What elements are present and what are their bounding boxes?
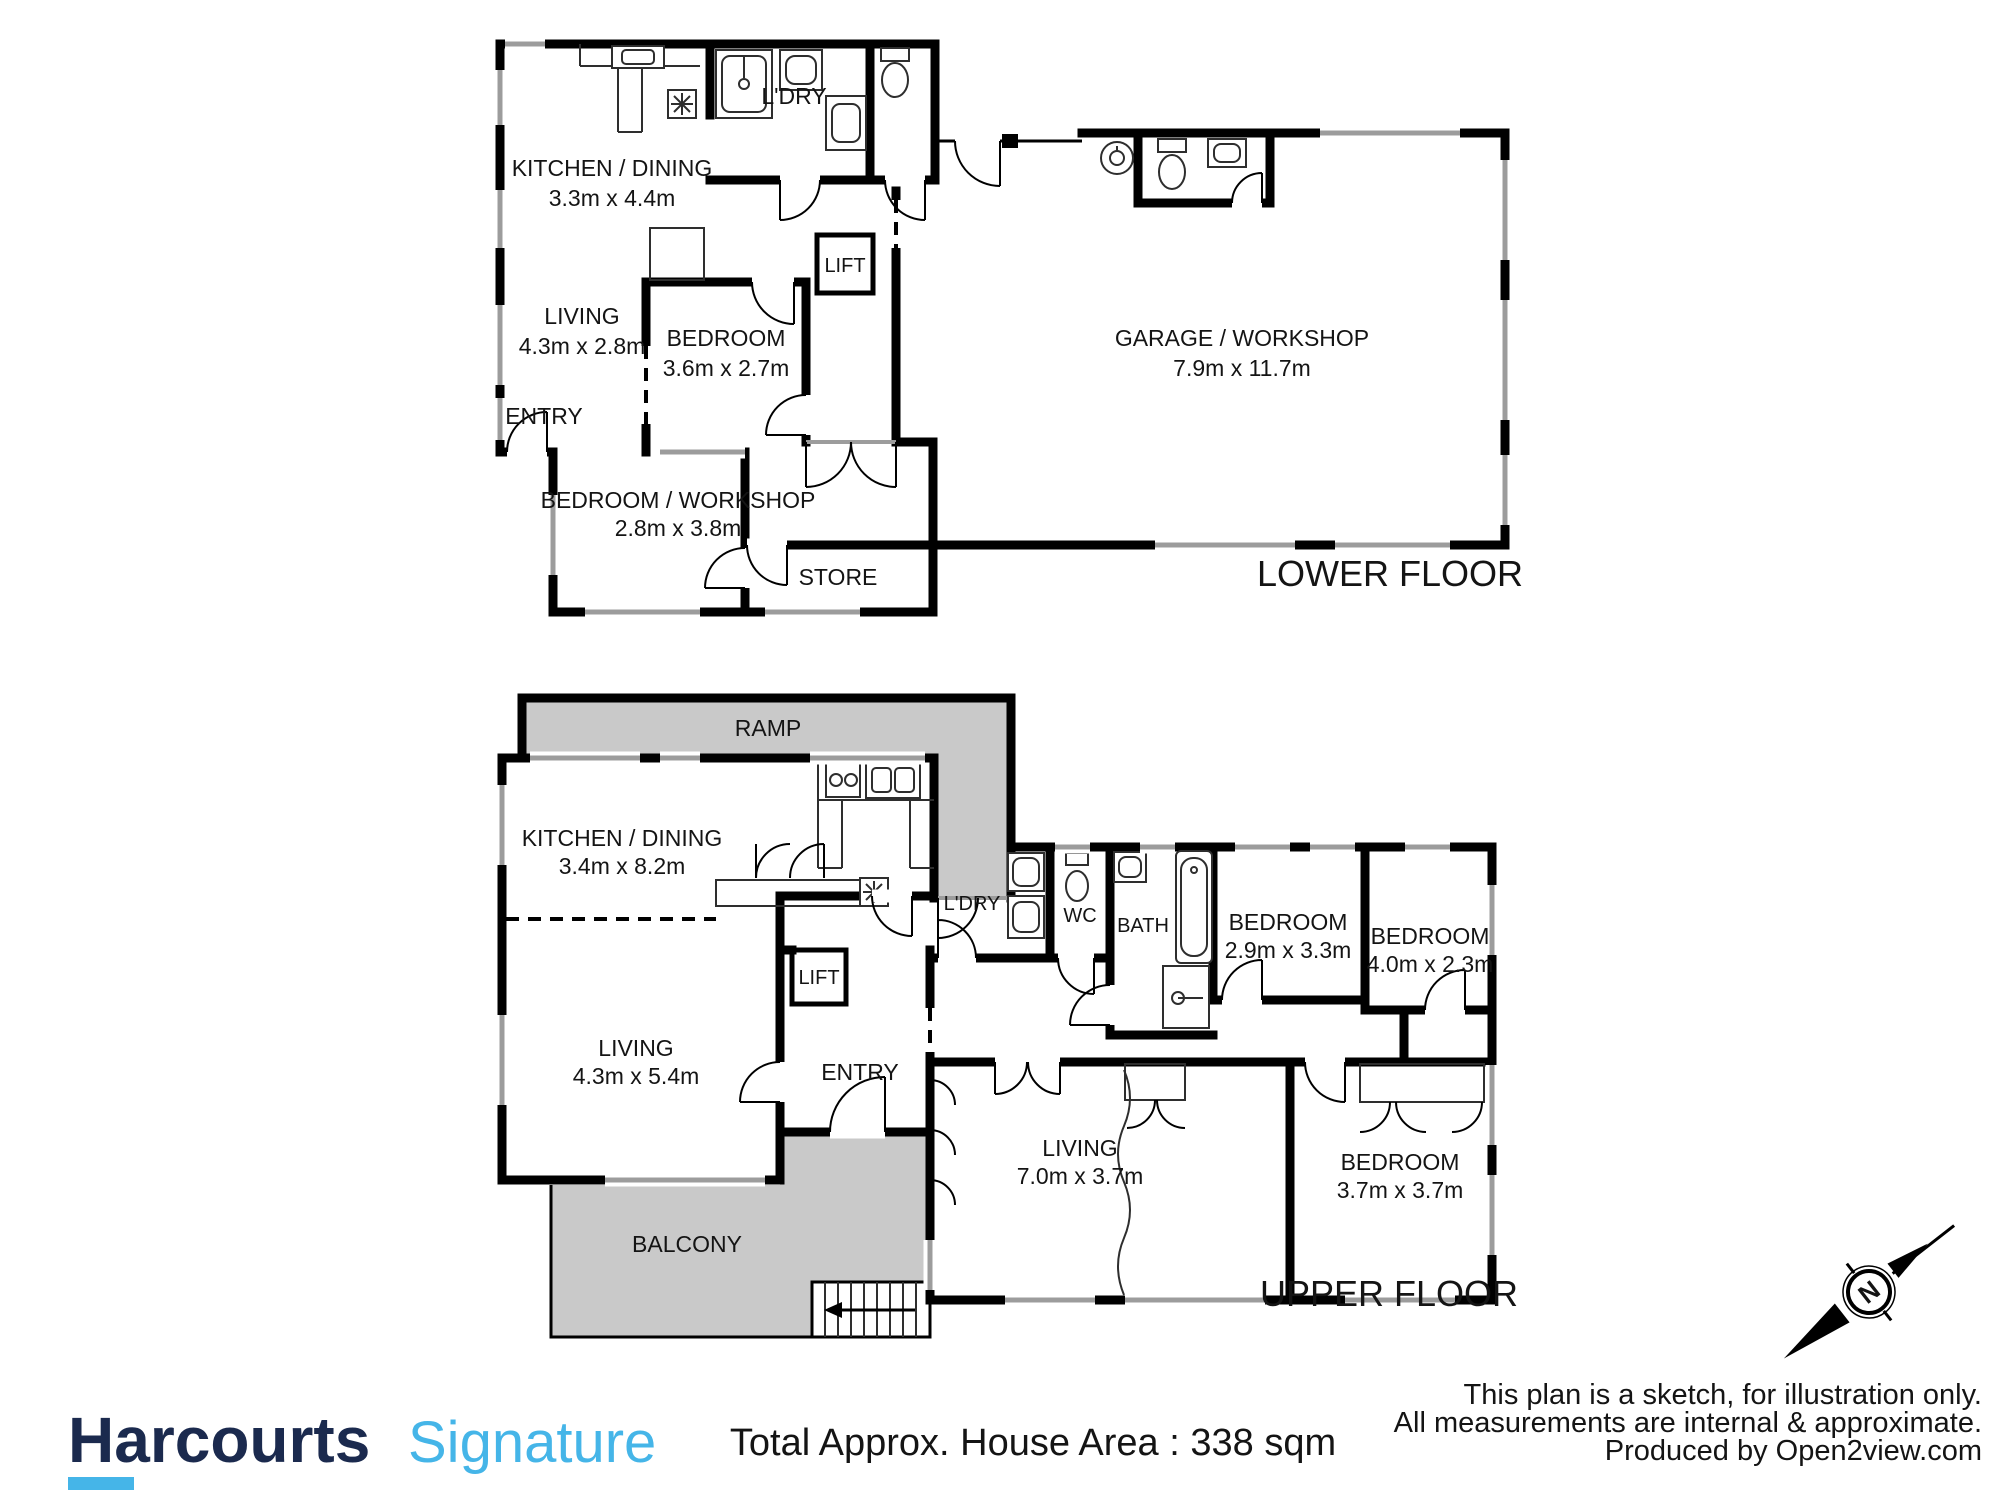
washing-machine-icon-lower bbox=[826, 96, 866, 150]
room-label-balcony: BALCONY bbox=[632, 1231, 742, 1257]
gate-post bbox=[1002, 134, 1018, 148]
room-label-kitchen-dining-upper: KITCHEN / DINING bbox=[522, 825, 723, 851]
room-dims-kitchen-dining-upper: 3.4m x 8.2m bbox=[559, 853, 686, 879]
hot-water-cylinder-icon bbox=[1101, 142, 1133, 174]
kitchen-sink-icon-upper bbox=[866, 762, 920, 798]
floor-plan: KITCHEN / DINING 3.3m x 4.4m L'DRY LIVIN… bbox=[0, 0, 2000, 1500]
washing-machine-icon-upper bbox=[1008, 896, 1044, 938]
room-label-ramp: RAMP bbox=[735, 715, 801, 741]
room-label-laundry-lower: L'DRY bbox=[761, 83, 826, 109]
room-label-living2-upper: LIVING bbox=[1042, 1135, 1117, 1161]
toilet-icon-upper bbox=[1066, 853, 1088, 901]
room-label-lift-lower: LIFT bbox=[824, 255, 865, 277]
room-label-bedroom-workshop: BEDROOM / WORKSHOP bbox=[541, 487, 816, 513]
room-dims-living-main-upper: 4.3m x 5.4m bbox=[573, 1063, 700, 1089]
room-label-bedroom1-upper: BEDROOM bbox=[1229, 909, 1348, 935]
shower-icon-upper bbox=[1163, 966, 1209, 1028]
room-label-bath-upper: BATH bbox=[1117, 915, 1169, 937]
room-label-bedroom3-upper: BEDROOM bbox=[1341, 1149, 1460, 1175]
room-label-bedroom-lower: BEDROOM bbox=[667, 325, 786, 351]
stove-icon-lower bbox=[668, 90, 696, 118]
upper-door-arcs bbox=[740, 844, 1465, 1132]
brand-logo-text: Harcourts bbox=[68, 1404, 370, 1476]
upper-floor-plan: RAMP KITCHEN / DINING 3.4m x 8.2m L'DRY … bbox=[502, 698, 1518, 1337]
room-label-kitchen-dining-lower: KITCHEN / DINING bbox=[512, 155, 713, 181]
room-label-store: STORE bbox=[799, 564, 878, 590]
brand-suffix-text: Signature bbox=[408, 1410, 656, 1475]
lower-floor-plan: KITCHEN / DINING 3.3m x 4.4m L'DRY LIVIN… bbox=[500, 44, 1523, 612]
room-label-garage: GARAGE / WORKSHOP bbox=[1115, 325, 1369, 351]
room-label-entry-upper: ENTRY bbox=[821, 1059, 899, 1085]
room-dims-bedroom-workshop: 2.8m x 3.8m bbox=[615, 515, 742, 541]
dishwasher-icon-upper bbox=[826, 763, 860, 797]
toilet-icon-garage bbox=[1158, 139, 1186, 189]
room-dims-living-lower: 4.3m x 2.8m bbox=[519, 333, 646, 359]
toilet-icon-lower bbox=[881, 48, 909, 97]
floor-plan-page: KITCHEN / DINING 3.3m x 4.4m L'DRY LIVIN… bbox=[0, 0, 2000, 1500]
room-dims-bedroom-lower: 3.6m x 2.7m bbox=[663, 355, 790, 381]
bath-sink-icon bbox=[1114, 852, 1146, 882]
upper-floor-title: UPPER FLOOR bbox=[1260, 1273, 1518, 1314]
total-area-text: Total Approx. House Area : 338 sqm bbox=[730, 1422, 1336, 1464]
brand-underline bbox=[68, 1477, 134, 1490]
room-dims-kitchen-dining-lower: 3.3m x 4.4m bbox=[549, 185, 676, 211]
bathtub-icon bbox=[1176, 851, 1212, 963]
room-dims-bedroom2-upper: 4.0m x 2.3m bbox=[1367, 951, 1494, 977]
closet-bedroom3 bbox=[1360, 1064, 1484, 1102]
room-label-entry-lower: ENTRY bbox=[505, 403, 583, 429]
stairs bbox=[812, 1282, 930, 1337]
upper-cased-openings bbox=[506, 919, 930, 1052]
room-dims-garage: 7.9m x 11.7m bbox=[1173, 355, 1311, 381]
room-label-laundry-upper: L'DRY bbox=[944, 893, 1001, 915]
footer: Harcourts Signature Total Approx. House … bbox=[68, 1379, 1982, 1490]
disclaimer-line-3: Produced by Open2view.com bbox=[1605, 1435, 1982, 1467]
laundry-sink-icon-upper bbox=[1008, 853, 1044, 891]
closet-lower bbox=[650, 228, 704, 280]
garage-sink-icon bbox=[1208, 139, 1246, 167]
room-dims-bedroom3-upper: 3.7m x 3.7m bbox=[1337, 1177, 1464, 1203]
room-label-bedroom2-upper: BEDROOM bbox=[1371, 923, 1490, 949]
lower-floor-title: LOWER FLOOR bbox=[1257, 553, 1523, 594]
compass-icon: N bbox=[1762, 1197, 1977, 1387]
room-label-living-main-upper: LIVING bbox=[598, 1035, 673, 1061]
room-dims-living2-upper: 7.0m x 3.7m bbox=[1017, 1163, 1144, 1189]
room-label-living-lower: LIVING bbox=[544, 303, 619, 329]
closet-living2 bbox=[1125, 1064, 1185, 1100]
room-label-lift-upper: LIFT bbox=[798, 967, 839, 989]
room-dims-bedroom1-upper: 2.9m x 3.3m bbox=[1225, 937, 1352, 963]
room-label-wc-upper: WC bbox=[1063, 905, 1096, 927]
